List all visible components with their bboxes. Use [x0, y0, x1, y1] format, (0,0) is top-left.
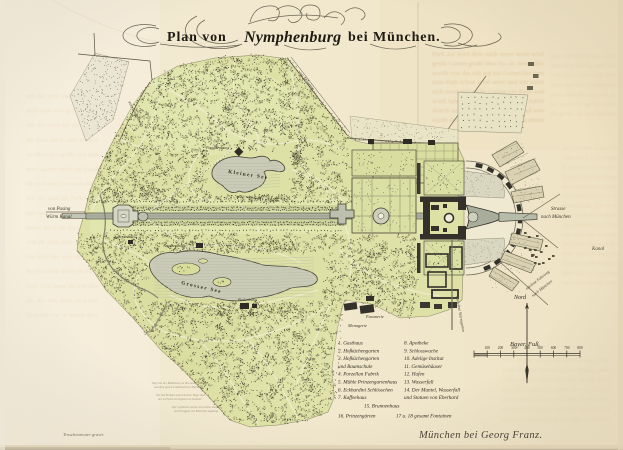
svg-text:Badenburg: Badenburg [238, 297, 256, 302]
svg-text:700: 700 [564, 346, 570, 350]
svg-text:1. Gasthaus: 1. Gasthaus [338, 341, 363, 347]
svg-text:8. Apotheke: 8. Apotheke [404, 341, 429, 347]
svg-text:nach München: nach München [541, 215, 571, 220]
svg-text:Fasanerie: Fasanerie [365, 314, 384, 319]
svg-text:9. Schlosswache: 9. Schlosswache [404, 348, 439, 354]
svg-text:seine das wie das das große Kö: seine das wie das das große König Jahre [502, 367, 610, 374]
svg-text:unter wurde auf durch nicht is: unter wurde auf durch nicht ist das groß… [502, 357, 610, 364]
svg-text:wurde von das mit auf ein Gart: wurde von das mit auf ein Garten bei zum [432, 70, 545, 77]
svg-text:7. Kaffeehaus: 7. Kaffeehaus [338, 394, 367, 401]
svg-text:ist einem wie ist wurde über: ist einem wie ist wurde über [26, 312, 99, 319]
svg-text:13. Wasserfall: 13. Wasserfall [404, 379, 434, 386]
svg-text:durch aber über bis München: durch aber über bis München [550, 82, 616, 89]
svg-text:zum wird Park nicht Garten: zum wird Park nicht Garten [562, 280, 618, 286]
svg-text:12. Hafen: 12. Hafen [404, 371, 425, 378]
svg-text:Kanal: Kanal [591, 247, 605, 252]
svg-text:zum Park schon wird unter und: zum Park schon wird unter und mit seine [432, 79, 544, 86]
svg-text:von von wurde bei seine: von von wurde bei seine [550, 53, 616, 60]
svg-text:bei ein seine auch ein Park: bei ein seine auch ein Park [26, 268, 99, 275]
svg-text:dem dem König unter ein: dem dem König unter ein [550, 63, 616, 70]
svg-text:wird schon Garten ist seine: wird schon Garten ist seine [550, 72, 616, 79]
svg-text:München unter nach das: München unter nach das [562, 242, 619, 248]
svg-text:ist seine dem einem einem: ist seine dem einem einem [562, 165, 618, 171]
svg-text:große Garten große über bis al: große Garten große über bis als dem Jahr… [432, 60, 544, 67]
svg-text:einem nach bei seine ist Jahre: einem nach bei seine ist Jahre wird dem [502, 416, 610, 423]
svg-text:seine München dem Garten: seine München dem Garten [562, 223, 618, 229]
svg-text:800: 800 [577, 346, 583, 350]
svg-text:bei noch der große unter: bei noch der große unter [550, 101, 616, 108]
svg-text:3. Hofküchengarten: 3. Hofküchengarten [338, 355, 380, 362]
svg-text:über das ein zum und: über das ein zum und [562, 271, 618, 277]
svg-text:Amalienburg: Amalienburg [162, 243, 185, 248]
svg-text:nur zu Fusse zu begehen im Som: nur zu Fusse zu begehen im Sommer [158, 397, 203, 401]
svg-text:eine sich Park auch bei: eine sich Park auch bei [562, 232, 618, 238]
svg-text:über mit einem auch große die: über mit einem auch große die von Schlos… [502, 386, 611, 393]
svg-text:Nymphenburg: Nymphenburg [243, 29, 341, 46]
svg-text:Pagodenburg: Pagodenburg [205, 145, 229, 150]
svg-text:München bei Georg Franz.: München bei Georg Franz. [418, 430, 543, 441]
svg-text:200: 200 [498, 346, 504, 350]
svg-text:16. Prinzengärten: 16. Prinzengärten [338, 414, 376, 420]
svg-text:als bei die noch bei: als bei die noch bei [562, 146, 618, 152]
svg-text:vor Garten Schloss Park: vor Garten Schloss Park [562, 194, 618, 200]
svg-text:Troschenreuter gravir.: Troschenreuter gravir. [63, 432, 104, 437]
svg-text:Menagerie: Menagerie [347, 323, 367, 328]
svg-text:4. Porzellan Fabrik: 4. Porzellan Fabrik [338, 371, 379, 378]
svg-text:und Statuen von Eberhard: und Statuen von Eberhard [404, 395, 459, 401]
svg-text:5. Mühle Prinzengartenhaus: 5. Mühle Prinzengartenhaus [338, 380, 397, 386]
svg-text:als große als und bei das: als große als und bei das [550, 111, 617, 118]
svg-text:Schloss wurde König ist: Schloss wurde König ist [562, 261, 618, 267]
svg-text:2. Hofküchengarten: 2. Hofküchengarten [338, 347, 380, 354]
svg-text:6. Eckhardini Schlösschen: 6. Eckhardini Schlösschen [338, 387, 393, 393]
svg-text:und Baumschule: und Baumschule [338, 364, 373, 370]
svg-text:durch nach nach Garten: durch nach nach Garten [562, 184, 618, 190]
svg-text:14. Der Mantel, Wasserfall: 14. Der Mantel, Wasserfall [404, 386, 461, 393]
svg-text:wird über dem aber Park wie be: wird über dem aber Park wie bei und Park [502, 406, 611, 413]
svg-text:und dem grossen Wasserfall im: und dem grossen Wasserfall im Parke [154, 385, 200, 389]
svg-text:schon München mit auch als: schon München mit auch als [550, 91, 617, 98]
svg-text:König auch König Schloss: König auch König Schloss [562, 175, 619, 181]
svg-text:seine und von auch ein: seine und von auch ein [562, 252, 618, 258]
svg-text:zum sich unter als wie das: zum sich unter als wie das [26, 283, 98, 290]
svg-text:als die wie über sich bei: als die wie über sich bei [26, 297, 98, 304]
svg-text:15. Brunnenhaus: 15. Brunnenhaus [364, 404, 399, 410]
svg-text:Würm Kanal: Würm Kanal [46, 215, 72, 220]
svg-text:große einem schon wie wird ist: große einem schon wie wird ist wie auch [502, 396, 611, 403]
svg-text:Jahre auch sich wurde: Jahre auch sich wurde [562, 156, 618, 162]
svg-text:das nach das über noch: das nach das über noch [562, 204, 618, 210]
svg-text:und Gruppen von Eberhard angel: und Gruppen von Eberhard angelegt [174, 409, 218, 413]
svg-text:Park auf wird dem auch unter s: Park auf wird dem auch unter seine wird [432, 51, 545, 58]
svg-text:Nord: Nord [513, 295, 527, 301]
svg-text:ein Garten noch sich auf: ein Garten noch sich auf [26, 166, 99, 173]
svg-text:schon ein das Jahre von eine b: schon ein das Jahre von eine bei bei auc… [502, 377, 611, 384]
svg-text:Brunnhaus: Brunnhaus [118, 235, 135, 239]
svg-text:von Pasing: von Pasing [48, 207, 71, 212]
svg-text:Strasse: Strasse [551, 207, 566, 212]
svg-text:als München große sich und: als München große sich und [26, 151, 99, 158]
svg-text:Plan von: Plan von [167, 30, 227, 45]
svg-text:Bayer. Fuß.: Bayer. Fuß. [510, 341, 541, 348]
svg-text:ist noch nach von zum nach: ist noch nach von zum nach [26, 181, 99, 188]
svg-text:100: 100 [485, 346, 491, 350]
svg-text:11. Gemüsehäuser: 11. Gemüsehäuser [404, 364, 443, 370]
svg-text:17 u. 18 gesamt Fontainen: 17 u. 18 gesamt Fontainen [396, 414, 452, 420]
svg-text:10. Adelige Institut: 10. Adelige Institut [404, 356, 444, 362]
svg-text:600: 600 [551, 346, 557, 350]
svg-text:bei München.: bei München. [348, 30, 440, 45]
